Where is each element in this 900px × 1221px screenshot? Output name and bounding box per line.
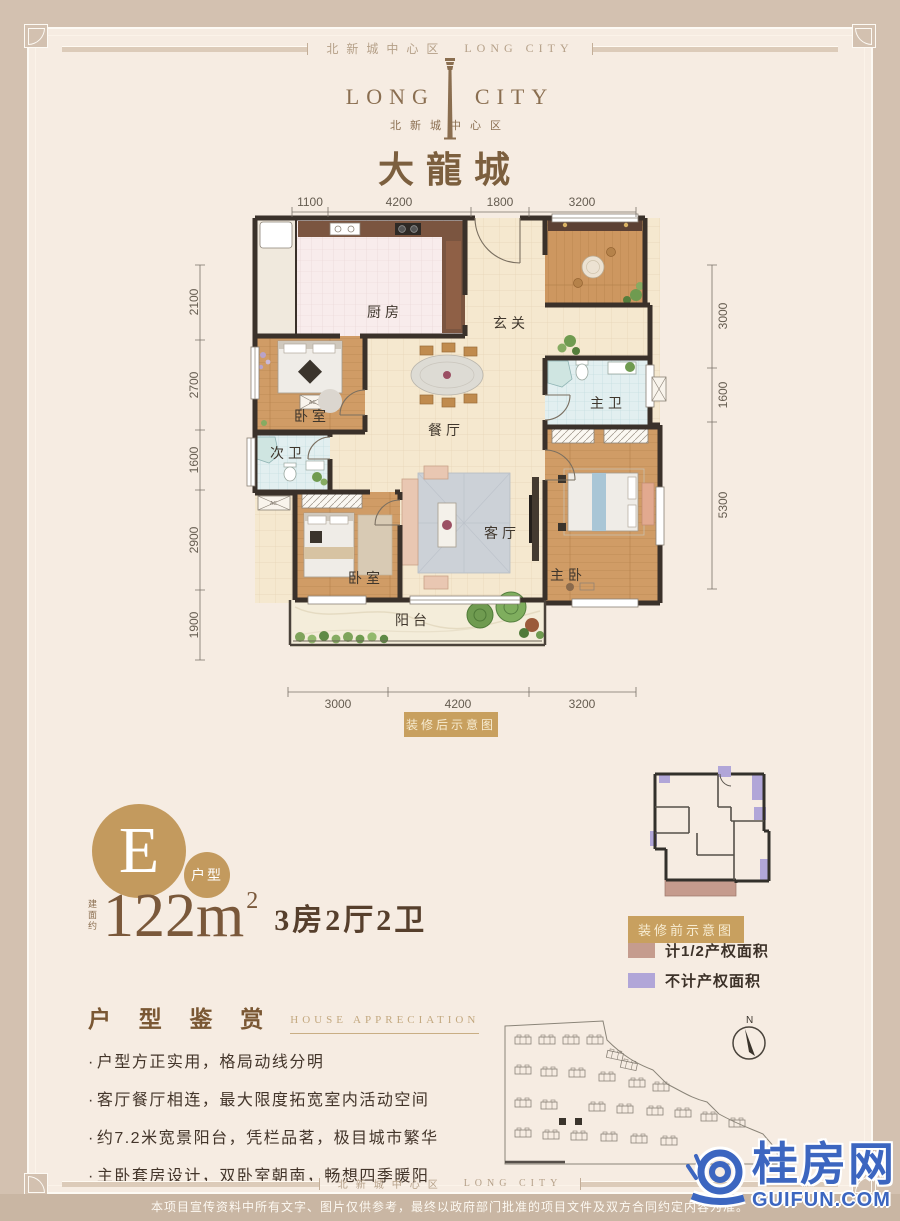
floorplan-after-decoration: AC [180, 195, 740, 755]
band-text-en: LONG CITY [464, 41, 573, 56]
frame-corner-ornament [24, 24, 48, 48]
site-buildings [515, 1035, 745, 1145]
unit-area-row: 建面约 122m 2 3房2厅2卫 [86, 890, 427, 943]
logo-name: 大龍城 [0, 141, 900, 193]
bullet-item: ·客厅餐厅相连，最大限度拓宽室内活动空间 [88, 1086, 439, 1110]
dim-left-2: 2700 [187, 371, 201, 398]
logo-en-right: CITY [475, 84, 554, 110]
legend-swatch-pink [628, 943, 655, 958]
dim-right-1: 3000 [716, 302, 730, 329]
logo-subtitle: 北新城中心区 [0, 117, 900, 133]
svg-text:AC: AC [270, 501, 277, 507]
appreciation-title: 户 型 鉴 赏 HOUSE APPRECIATION [88, 1000, 479, 1034]
label-master-bath: 主卫 [590, 395, 626, 411]
label-kitchen: 厨房 [367, 304, 403, 320]
legend-row-half-area: 计1/2产权面积 [628, 940, 769, 961]
logo-en-left: LONG [346, 84, 435, 110]
area-value: 122m [103, 890, 244, 943]
band-rule [62, 1181, 320, 1187]
area-prefix: 建面约 [86, 899, 99, 935]
label-foyer: 玄关 [493, 315, 529, 331]
dim-top-4: 3200 [569, 195, 596, 209]
footer-band-en: LONG CITY [464, 1178, 563, 1189]
snail-logo-icon [682, 1140, 752, 1210]
compass: N [733, 1015, 765, 1059]
badge-after-decoration: 装修后示意图 [404, 712, 498, 737]
label-bedroom2: 卧室 [348, 570, 384, 586]
label-living: 客厅 [484, 525, 520, 541]
label-balcony: 阳台 [395, 612, 431, 628]
before-plan-walls [655, 774, 769, 883]
top-band: 北新城中心区 LONG CITY [62, 40, 838, 57]
watermark-cn: 桂房网 [752, 1141, 896, 1187]
legend-label-no-area: 不计产权面积 [665, 970, 761, 991]
dim-bottom-1: 3000 [325, 697, 352, 711]
frame-corner-ornament [852, 24, 876, 48]
before-plan-areas [650, 766, 769, 896]
dim-right-2: 1600 [716, 381, 730, 408]
area-superscript: 2 [246, 888, 258, 915]
appreciation-title-cn: 户 型 鉴 赏 [88, 1000, 274, 1034]
compass-north-label: N [746, 1015, 753, 1026]
dim-left-4: 2900 [187, 526, 201, 553]
label-master-bedroom: 主卧 [550, 567, 586, 583]
floorplan-before-decoration [632, 765, 782, 910]
dim-top-1: 1100 [297, 195, 323, 209]
band-rule [62, 46, 308, 52]
legend-label-half-area: 计1/2产权面积 [665, 940, 769, 961]
label-dining: 餐厅 [428, 422, 464, 438]
bullet-item: ·约7.2米宽景阳台，凭栏品茗，极目城市繁华 [88, 1124, 439, 1148]
brand-logo: LONG CITY 北新城中心区 大龍城 [0, 56, 900, 193]
dim-left-5: 1900 [187, 611, 201, 638]
dim-top-3: 1800 [487, 195, 514, 209]
dim-right-3: 5300 [716, 491, 730, 518]
dim-bottom-3: 3200 [569, 697, 596, 711]
legend-swatch-purple [628, 973, 655, 988]
unit-letter: E [119, 813, 159, 889]
watermark-text: 桂房网 GUIFUN.COM [752, 1141, 896, 1210]
footer-band-cn: 北新城中心区 [338, 1176, 446, 1191]
rooms-count-label: 3房2厅2卫 [274, 895, 427, 939]
dim-left-3: 1600 [187, 446, 201, 473]
legend-row-no-area: 不计产权面积 [628, 970, 769, 991]
watermark: 桂房网 GUIFUN.COM [682, 1140, 896, 1210]
band-text-cn: 北新城中心区 [326, 40, 446, 57]
label-bedroom1: 卧室 [294, 408, 330, 424]
poster-page: 北新城中心区 LONG CITY LONG CITY 北新城中心区 大龍城 [0, 0, 900, 1221]
area-legend: 计1/2产权面积 不计产权面积 [628, 940, 769, 1000]
dim-top-2: 4200 [386, 195, 413, 209]
before-plan-partitions [655, 774, 764, 880]
dim-left-1: 2100 [187, 288, 201, 315]
watermark-en: GUIFUN.COM [752, 1190, 896, 1210]
badge-before-decoration: 装修前示意图 [628, 916, 744, 943]
svg-text:AC: AC [309, 400, 316, 406]
label-second-bath: 次卫 [270, 445, 306, 461]
bullet-item: ·户型方正实用，格局动线分明 [88, 1048, 439, 1072]
dim-bottom-2: 4200 [445, 697, 472, 711]
band-rule [592, 46, 838, 52]
logo-english: LONG CITY [0, 84, 900, 110]
appreciation-title-en: HOUSE APPRECIATION [290, 1014, 479, 1034]
